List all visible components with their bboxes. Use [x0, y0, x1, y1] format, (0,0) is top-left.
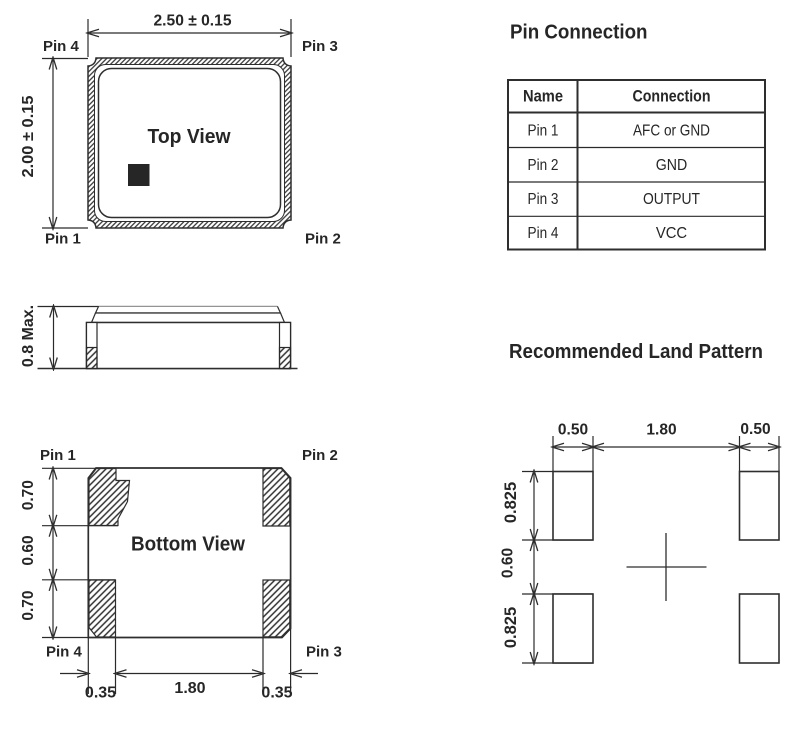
svg-text:0.70: 0.70 — [20, 591, 37, 621]
svg-text:0.70: 0.70 — [20, 480, 37, 510]
svg-text:Pin 3: Pin 3 — [302, 38, 338, 55]
svg-text:Connection: Connection — [633, 88, 711, 106]
svg-text:Pin 4: Pin 4 — [46, 644, 83, 661]
svg-text:Pin 2: Pin 2 — [528, 157, 559, 174]
svg-text:1.80: 1.80 — [646, 422, 676, 439]
svg-text:Pin 4: Pin 4 — [528, 225, 559, 242]
svg-text:Pin 1: Pin 1 — [45, 231, 81, 248]
svg-text:0.35: 0.35 — [85, 685, 116, 702]
svg-text:0.35: 0.35 — [261, 685, 292, 702]
svg-text:Pin 1: Pin 1 — [40, 447, 76, 464]
svg-text:0.50: 0.50 — [558, 422, 588, 439]
svg-text:Pin 1: Pin 1 — [528, 123, 559, 140]
svg-text:OUTPUT: OUTPUT — [643, 191, 700, 208]
svg-text:GND: GND — [656, 157, 688, 174]
svg-text:VCC: VCC — [656, 225, 687, 242]
svg-text:Pin 3: Pin 3 — [528, 191, 559, 208]
svg-text:Bottom View: Bottom View — [131, 534, 245, 556]
svg-text:2.00 ± 0.15: 2.00 ± 0.15 — [20, 95, 37, 177]
svg-text:Top View: Top View — [148, 126, 231, 148]
svg-text:0.50: 0.50 — [740, 421, 770, 438]
svg-text:1.80: 1.80 — [174, 680, 205, 697]
svg-text:2.50 ± 0.15: 2.50 ± 0.15 — [154, 13, 232, 30]
svg-text:0.60: 0.60 — [20, 535, 37, 565]
svg-text:Pin Connection: Pin Connection — [510, 22, 648, 44]
svg-text:Pin 3: Pin 3 — [306, 644, 342, 661]
svg-text:Pin 2: Pin 2 — [305, 231, 341, 248]
svg-text:Name: Name — [523, 88, 563, 106]
svg-text:Pin 4: Pin 4 — [43, 38, 80, 55]
svg-text:Recommended Land Pattern: Recommended Land Pattern — [509, 341, 763, 363]
svg-text:0.60: 0.60 — [500, 548, 517, 578]
svg-text:0.825: 0.825 — [502, 607, 520, 648]
svg-text:0.825: 0.825 — [502, 482, 520, 523]
svg-text:Pin 2: Pin 2 — [302, 447, 338, 464]
svg-text:0.8 Max.: 0.8 Max. — [20, 305, 37, 367]
svg-text:AFC or GND: AFC or GND — [633, 123, 710, 140]
